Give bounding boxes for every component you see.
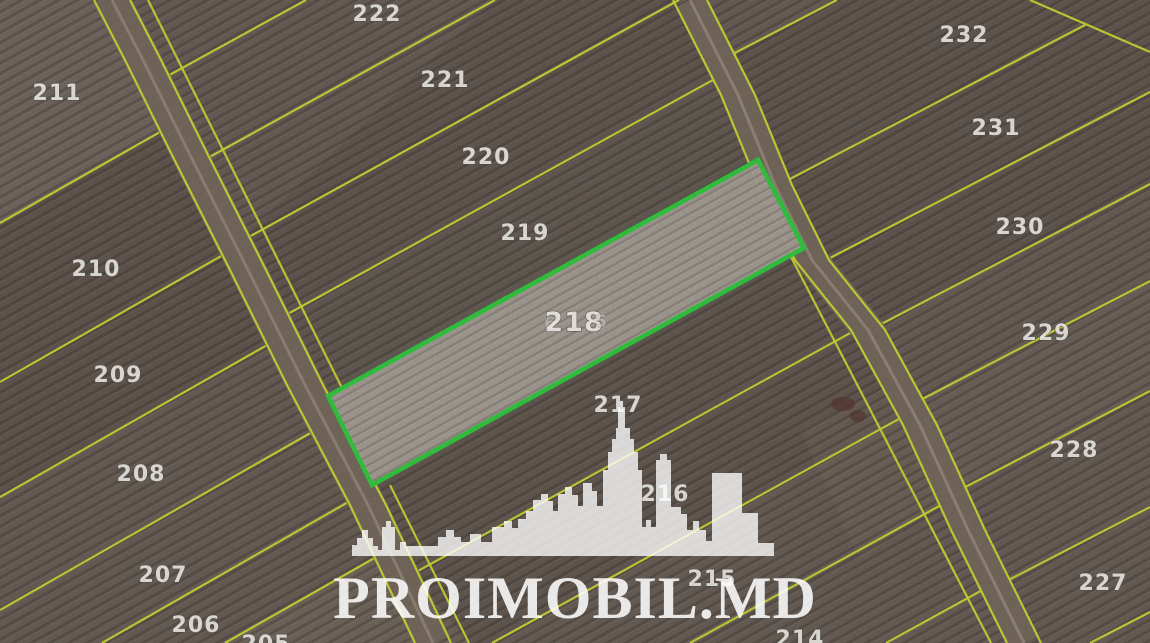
parcel-label-206: 206 xyxy=(172,613,221,638)
watermark-brand: PROIMOBIL.MD xyxy=(333,565,817,631)
parcel-label-230: 230 xyxy=(996,215,1045,240)
map-viewport[interactable]: 211 210 209 208 207 206 205 222 221 220 … xyxy=(0,0,1150,643)
parcel-label-210: 210 xyxy=(72,257,121,282)
parcel-label-229: 229 xyxy=(1022,321,1071,346)
parcel-label-231: 231 xyxy=(972,116,1021,141)
parcel-label-208: 208 xyxy=(117,462,166,487)
parcel-label-211: 211 xyxy=(33,81,82,106)
parcel-label-222: 222 xyxy=(353,2,402,27)
parcel-label-227: 227 xyxy=(1079,571,1128,596)
parcel-label-209: 209 xyxy=(94,363,143,388)
parcel-label-228: 228 xyxy=(1050,438,1099,463)
parcel-label-207: 207 xyxy=(139,563,188,588)
parcel-label-205: 205 xyxy=(242,632,291,643)
parcel-label-220: 220 xyxy=(462,145,511,170)
parcel-label-219: 219 xyxy=(501,221,550,246)
parcel-label-221: 221 xyxy=(421,68,470,93)
parcel-label-218-ghost-suffix: 5 xyxy=(595,312,607,332)
parcel-label-232: 232 xyxy=(940,23,989,48)
